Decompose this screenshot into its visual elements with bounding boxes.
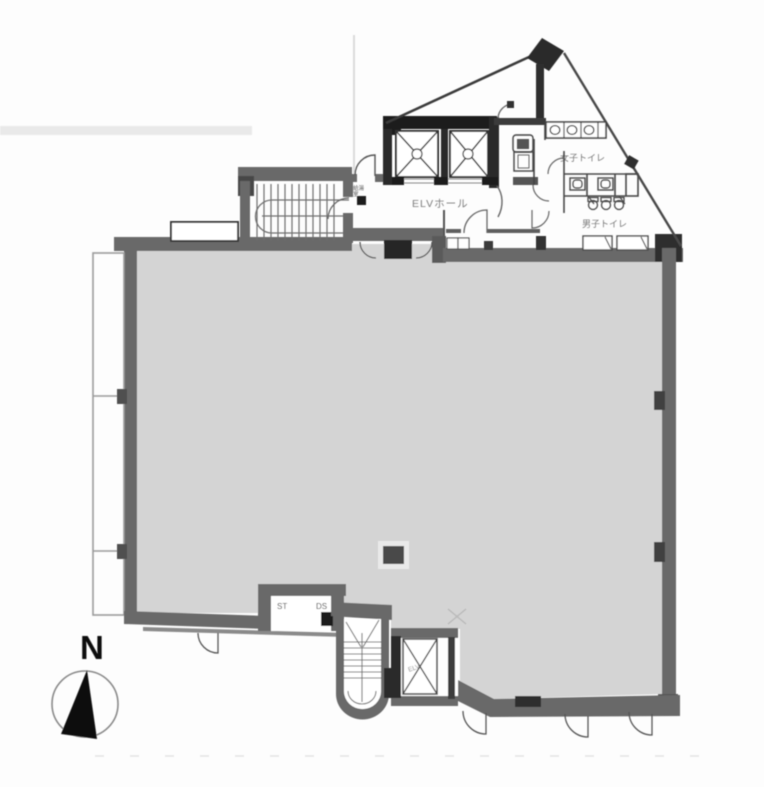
svg-text:給湯: 給湯 [353,184,365,192]
svg-text:女子トイレ: 女子トイレ [560,152,605,163]
svg-text:ELVホール: ELVホール [412,198,469,210]
svg-text:N: N [80,629,104,666]
svg-text:DS: DS [316,602,327,611]
svg-text:室: 室 [353,190,359,198]
svg-text:男子トイレ: 男子トイレ [582,219,627,229]
svg-text:ST: ST [277,602,287,611]
